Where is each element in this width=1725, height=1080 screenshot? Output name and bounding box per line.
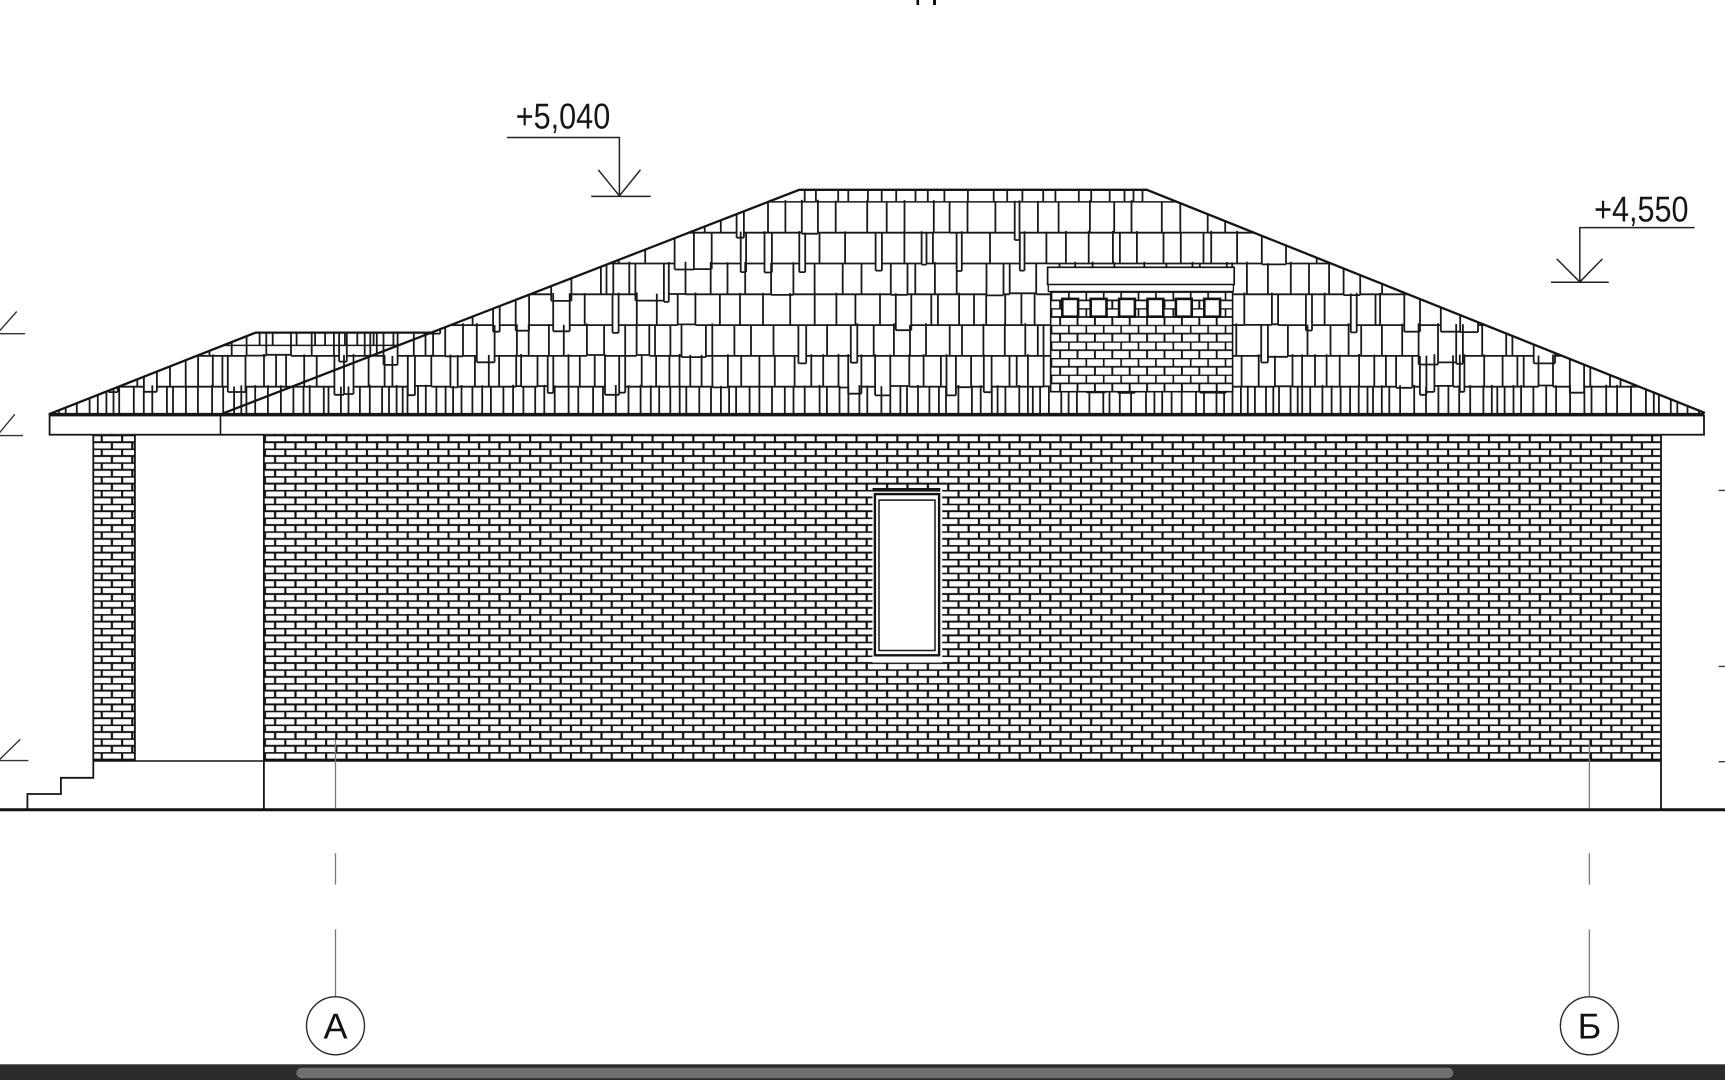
svg-text:+4,550: +4,550 bbox=[1594, 189, 1688, 230]
svg-text:Б: Б bbox=[1578, 1006, 1602, 1047]
svg-text:+5,040: +5,040 bbox=[516, 96, 610, 137]
svg-text:А: А bbox=[323, 1006, 347, 1047]
